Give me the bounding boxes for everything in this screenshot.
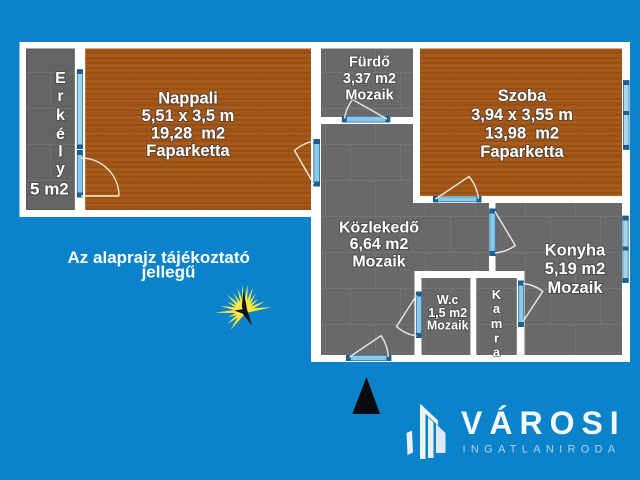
svg-text:é: é (56, 126, 65, 143)
svg-text:jellegű: jellegű (141, 263, 196, 282)
svg-text:5,51 x 3,5 m: 5,51 x 3,5 m (142, 107, 235, 125)
svg-text:Konyha: Konyha (545, 241, 606, 259)
svg-text:K: K (492, 287, 502, 302)
svg-text:Szoba: Szoba (498, 87, 547, 105)
svg-text:VÁROSI: VÁROSI (461, 405, 626, 441)
svg-text:Faparketta: Faparketta (480, 143, 564, 161)
svg-text:a: a (493, 301, 501, 316)
svg-text:m: m (491, 316, 503, 331)
svg-text:INGATLANIRODA: INGATLANIRODA (463, 444, 621, 456)
svg-text:l: l (58, 144, 62, 161)
svg-text:r: r (494, 331, 499, 346)
svg-text:Faparketta: Faparketta (146, 142, 230, 160)
svg-text:6,64 m2: 6,64 m2 (350, 236, 409, 253)
svg-text:Mozaik: Mozaik (547, 279, 603, 297)
svg-text:W.c: W.c (437, 293, 459, 307)
svg-text:Nappali: Nappali (158, 89, 218, 107)
svg-text:3,94 x 3,55 m: 3,94 x 3,55 m (471, 106, 573, 124)
svg-text:a: a (493, 345, 501, 360)
svg-text:Mozaik: Mozaik (427, 319, 469, 333)
svg-text:13,98 m2: 13,98 m2 (485, 125, 559, 143)
svg-text:Közlekedő: Közlekedő (339, 220, 419, 237)
svg-text:Mozaik: Mozaik (352, 253, 405, 270)
svg-text:5,19 m2: 5,19 m2 (545, 260, 606, 278)
svg-text:Fürdő: Fürdő (349, 55, 390, 71)
svg-text:19,28 m2: 19,28 m2 (151, 125, 225, 143)
svg-text:r: r (57, 88, 63, 105)
svg-text:5 m2: 5 m2 (30, 180, 69, 199)
svg-text:y: y (56, 161, 65, 178)
svg-text:Mozaik: Mozaik (345, 88, 394, 104)
svg-text:k: k (56, 107, 65, 124)
svg-text:E: E (55, 70, 66, 87)
svg-text:3,37 m2: 3,37 m2 (343, 71, 396, 87)
